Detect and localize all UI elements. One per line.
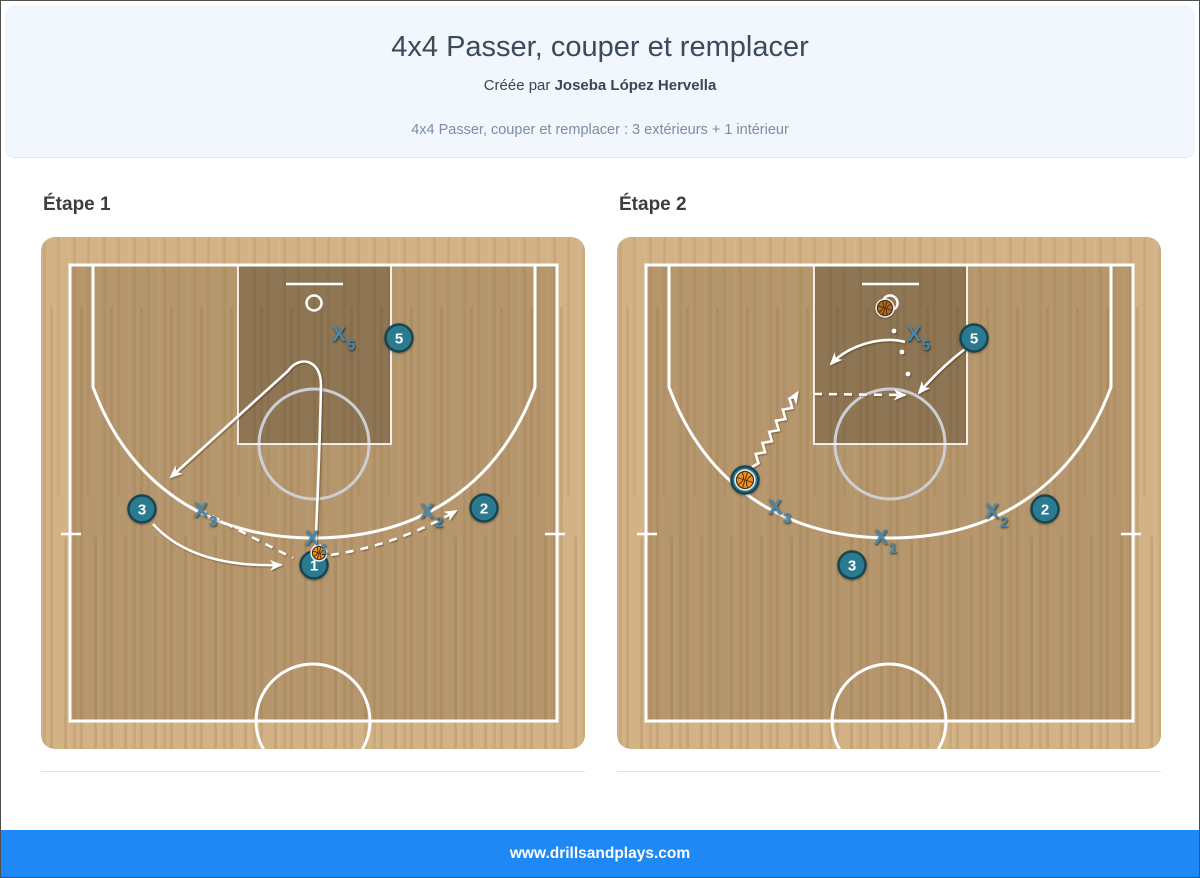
steps-row: Étape 1 5321X5X3X1X2 Étape 2 523X5X3X1X2 [41,193,1161,772]
svg-text:X: X [332,323,346,346]
drill-byline: Créée par Joseba López Hervella [5,77,1195,94]
step-title-1: Étape 1 [43,193,585,216]
offense-player-marker: 2 [471,495,498,522]
svg-text:2: 2 [1000,514,1008,531]
court-diagram-etape-1: 5321X5X3X1X2 [41,237,585,749]
svg-text:X: X [305,527,319,550]
offense-player-marker: 5 [961,325,988,352]
svg-text:2: 2 [1041,502,1049,519]
step-divider [617,771,1161,772]
svg-text:X: X [907,323,921,346]
svg-text:5: 5 [922,337,930,354]
svg-text:2: 2 [435,514,443,531]
svg-text:1: 1 [889,540,897,557]
drill-title: 4x4 Passer, couper et remplacer [5,5,1195,64]
offense-player-marker: 5 [386,325,413,352]
page: { "header": { "title": "4x4 Passer, coup… [0,0,1200,878]
offense-player-marker: 3 [129,496,156,523]
svg-text:5: 5 [395,331,403,348]
svg-text:X: X [874,526,888,549]
footer-bar: www.drillsandplays.com [1,830,1199,877]
svg-text:3: 3 [138,502,146,519]
svg-text:X: X [194,499,208,522]
svg-text:X: X [420,500,434,523]
svg-text:2: 2 [480,501,488,518]
drill-subtitle: 4x4 Passer, couper et remplacer : 3 exté… [5,122,1195,138]
byline-prefix: Créée par [484,77,551,94]
step-section-2: Étape 2 523X5X3X1X2 [617,193,1161,772]
svg-text:3: 3 [209,513,217,530]
step-divider [41,771,585,772]
footer-url[interactable]: www.drillsandplays.com [510,845,690,863]
svg-text:1: 1 [320,541,328,558]
step-title-2: Étape 2 [619,193,1161,216]
shot-dot [906,372,911,377]
drill-author: Joseba López Hervella [555,77,717,94]
shot-dot [892,329,897,334]
svg-text:3: 3 [783,510,791,527]
svg-text:X: X [768,496,782,519]
offense-player-marker: 2 [1032,496,1059,523]
header-panel: 4x4 Passer, couper et remplacer Créée pa… [5,5,1195,158]
shot-dot [900,350,905,355]
svg-text:X: X [985,500,999,523]
svg-text:5: 5 [347,337,355,354]
court-diagram-etape-2: 523X5X3X1X2 [617,237,1161,749]
offense-player-marker: 3 [839,552,866,579]
svg-text:3: 3 [848,558,856,575]
step-section-1: Étape 1 5321X5X3X1X2 [41,193,585,772]
svg-text:5: 5 [970,331,978,348]
